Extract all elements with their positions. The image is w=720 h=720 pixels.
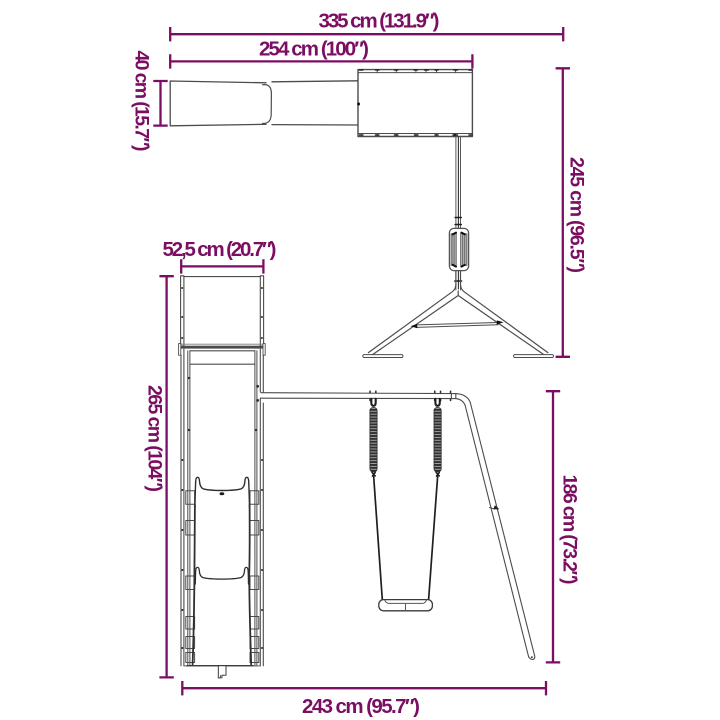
svg-text:245 cm (96.5″): 245 cm (96.5″) [566,157,588,273]
svg-text:52,5 cm (20.7″): 52,5 cm (20.7″) [163,238,277,261]
svg-text:186 cm (73.2″): 186 cm (73.2″) [559,475,581,585]
svg-text:335 cm (131.9″): 335 cm (131.9″) [319,10,440,33]
svg-text:243 cm (95.7″): 243 cm (95.7″) [302,695,420,718]
svg-text:265 cm (104″): 265 cm (104″) [144,385,166,492]
svg-text:40 cm (15.7″): 40 cm (15.7″) [131,51,153,152]
svg-text:254 cm (100″): 254 cm (100″) [259,38,369,61]
